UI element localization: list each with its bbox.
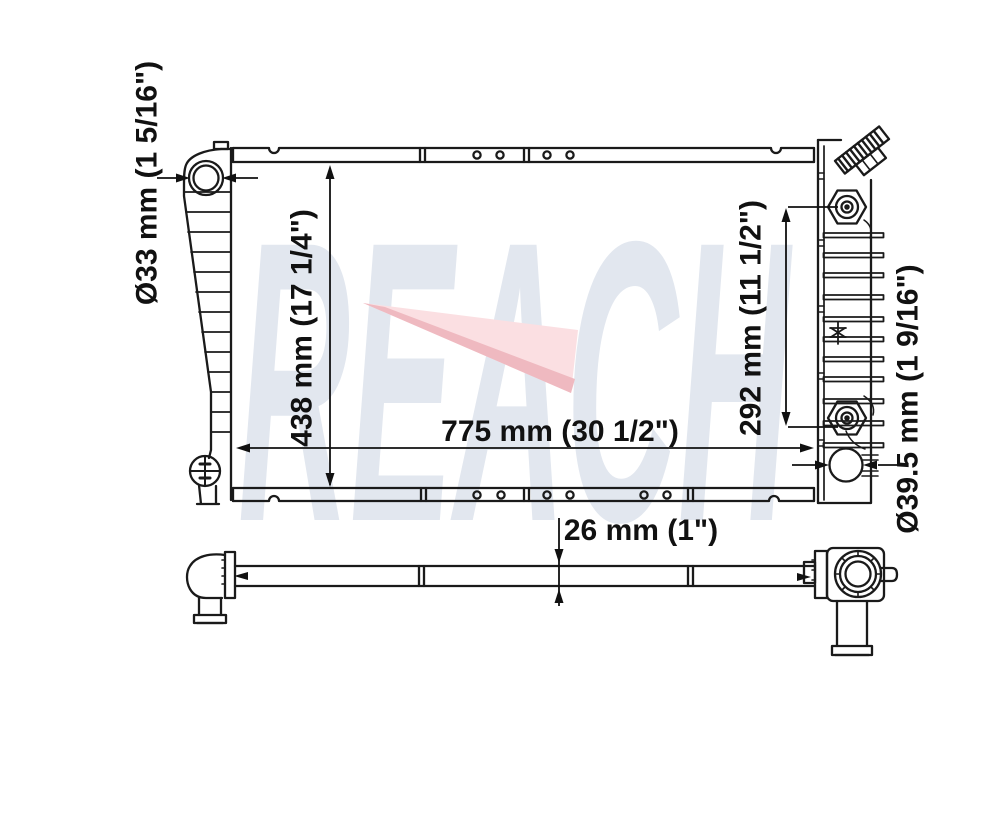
radiator-technical-diagram: REACH <box>0 0 1002 831</box>
outlet-elbow <box>804 548 897 655</box>
dim-outlet-label: Ø39.5 mm (1 9/16") <box>892 264 925 533</box>
diagram-canvas: REACH <box>0 0 1002 831</box>
tank-ribs <box>824 233 884 448</box>
dim-filler-neck-label: Ø33 mm (1 5/16") <box>131 61 164 305</box>
left-tank <box>184 148 233 504</box>
dim-height-label: 438 mm (17 1/4") <box>286 209 319 447</box>
inlet-elbow <box>187 552 235 623</box>
drain-fitting <box>190 456 220 504</box>
dim-port-spacing-label: 292 mm (11 1/2") <box>735 200 768 436</box>
upper-port-fitting <box>828 191 871 239</box>
dim-width-label: 775 mm (30 1/2") <box>441 415 679 448</box>
radiator-cap-icon <box>835 126 897 183</box>
dim-thickness-label: 26 mm (1") <box>564 514 718 547</box>
right-tank <box>818 126 897 503</box>
filler-neck <box>189 161 223 195</box>
